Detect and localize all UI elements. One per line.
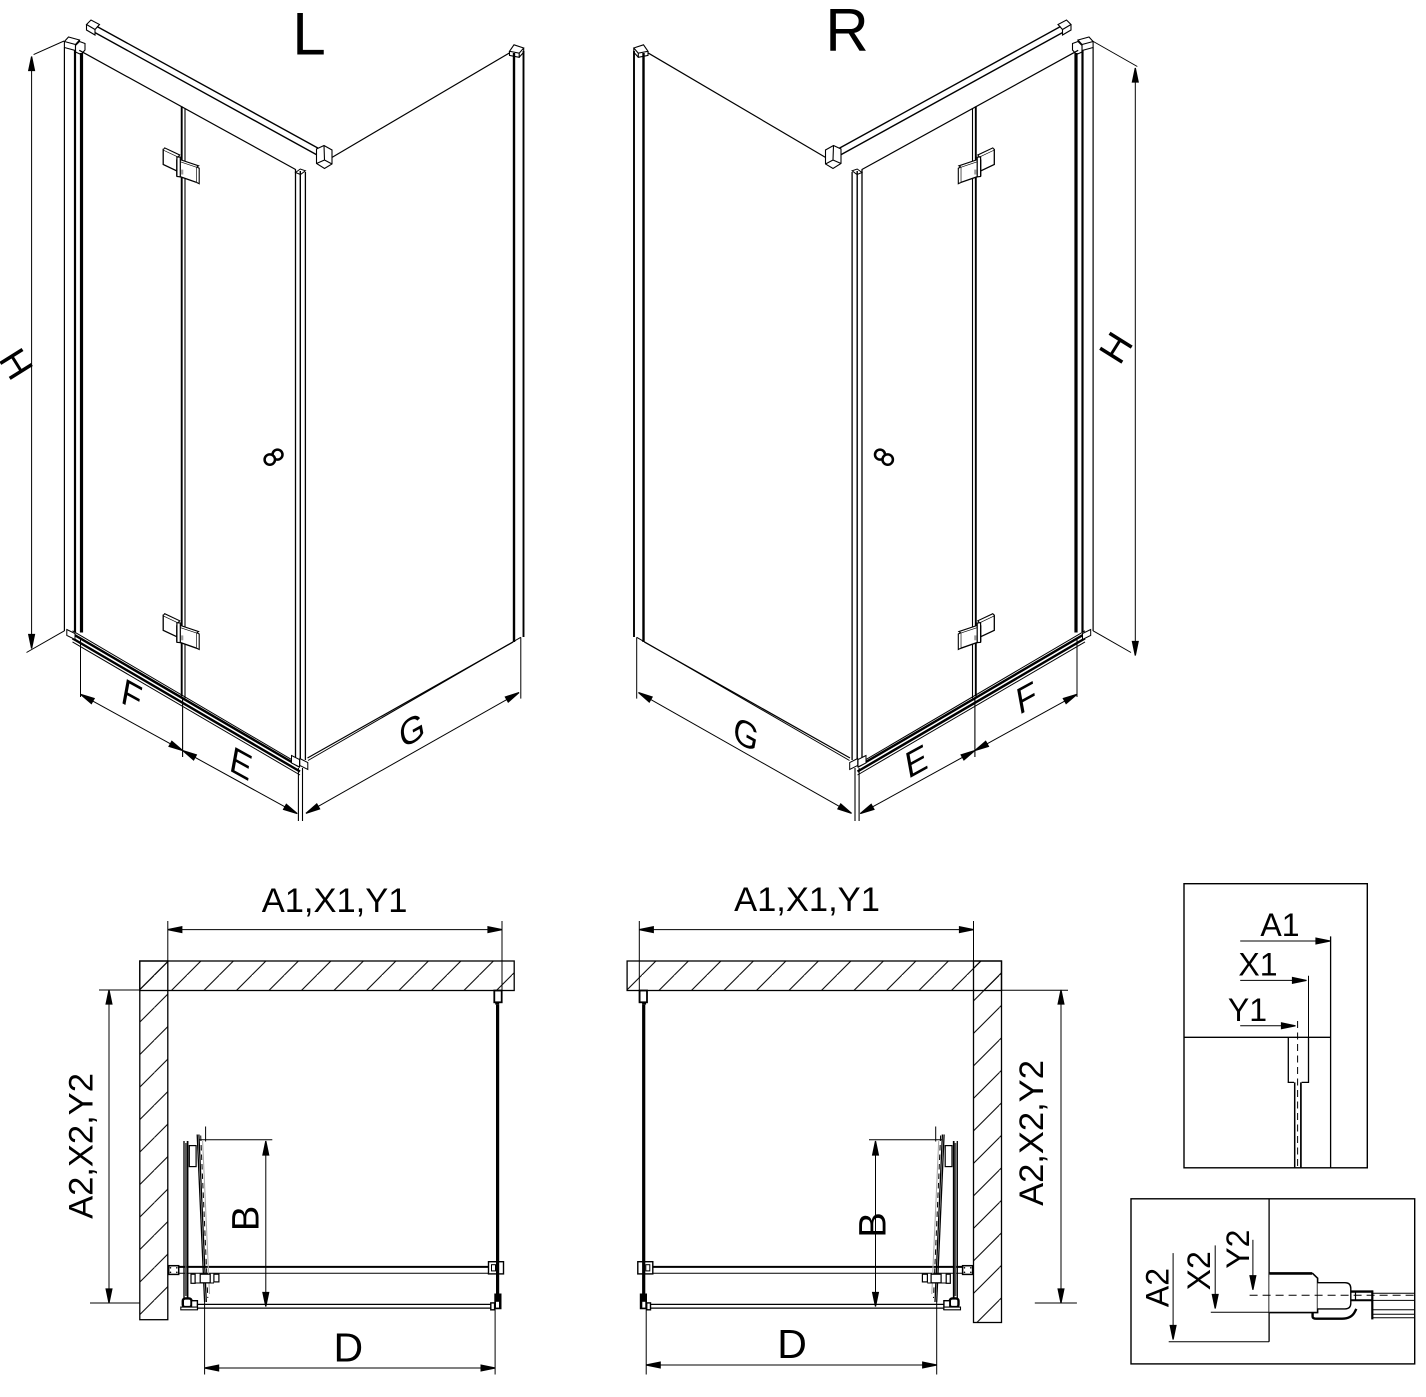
svg-text:Y2: Y2 (1220, 1230, 1256, 1269)
svg-text:G: G (396, 703, 428, 757)
svg-text:D: D (333, 1324, 363, 1370)
svg-text:X2: X2 (1181, 1251, 1217, 1290)
svg-text:H: H (1092, 325, 1142, 371)
svg-text:E: E (227, 738, 255, 790)
svg-text:A2: A2 (1140, 1268, 1176, 1307)
svg-text:D: D (777, 1321, 807, 1367)
svg-text:A1,X1,Y1: A1,X1,Y1 (734, 881, 880, 919)
svg-text:B: B (853, 1212, 895, 1237)
svg-text:H: H (0, 342, 40, 388)
svg-text:Y1: Y1 (1228, 992, 1267, 1028)
svg-text:B: B (226, 1206, 268, 1231)
svg-text:R: R (825, 0, 868, 64)
svg-text:A2,X2,Y2: A2,X2,Y2 (1013, 1060, 1051, 1206)
svg-text:G: G (730, 707, 762, 761)
svg-text:X1: X1 (1238, 947, 1277, 983)
svg-text:A1: A1 (1260, 907, 1299, 943)
svg-text:A1,X1,Y1: A1,X1,Y1 (262, 882, 408, 920)
svg-text:F: F (118, 670, 145, 721)
svg-text:L: L (292, 1, 325, 68)
svg-text:A2,X2,Y2: A2,X2,Y2 (63, 1073, 101, 1219)
svg-text:F: F (1013, 672, 1040, 723)
